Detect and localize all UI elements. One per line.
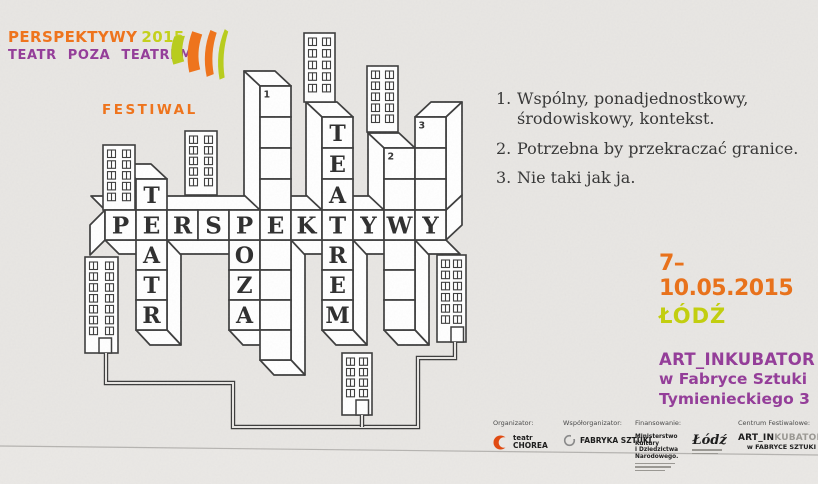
crossword-city-art: TATROZA1TEAREM23PERSPEKTYWY xyxy=(0,0,818,484)
brand-arcs-icon xyxy=(167,21,229,81)
fine-print-bar xyxy=(635,470,665,472)
ministry-line4: Narodowego. xyxy=(635,454,678,461)
footer-organizer: Organizator: teatr CHOREA xyxy=(493,419,548,451)
chorea-logo: teatr CHOREA xyxy=(493,434,548,451)
fabryka-circle-icon xyxy=(563,434,576,447)
clue-list: 1. Wspólny, ponadjednostkowy, środowisko… xyxy=(496,89,818,198)
festival-poster: TATROZA1TEAREM23PERSPEKTYWY PERSPEKTYWY2… xyxy=(0,0,818,484)
clue-3: 3. Nie taki jak ja. xyxy=(496,168,818,188)
clue-1: 1. Wspólny, ponadjednostkowy, środowisko… xyxy=(496,89,818,130)
artink-solid: ART_IN xyxy=(738,433,774,443)
organizer-label: Organizator: xyxy=(493,419,548,427)
chorea-crescent-icon xyxy=(493,434,509,451)
ministry-line2: Kultury xyxy=(635,441,678,448)
art-inkubator-logo: ART_INKUBATOR w FABRYCE SZTUKI xyxy=(738,434,816,451)
title-line: PERSPEKTYWY2015 xyxy=(8,30,193,46)
clue-2-number: 2. xyxy=(496,139,517,159)
lodz-city-logo: Łódź xyxy=(692,434,726,454)
festival-center-label: Centrum Festiwalowe: xyxy=(738,419,816,427)
artink-line2: w FABRYCE SZTUKI xyxy=(738,444,816,451)
venue-name: ART_INKUBATOR xyxy=(659,349,818,370)
clue-1-text: Wspólny, ponadjednostkowy, środowiskowy,… xyxy=(517,89,818,130)
financing-label: Finansowanie: xyxy=(635,419,727,427)
lodz-script: Łódź xyxy=(692,434,726,447)
fine-print-bar xyxy=(635,463,675,465)
event-dates: 7–10.05.2015 xyxy=(659,251,818,301)
fine-print-bar xyxy=(692,453,718,455)
clue-2: 2. Potrzebna by przekraczać granice. xyxy=(496,139,818,159)
clue-2-text: Potrzebna by przekraczać granice. xyxy=(517,139,798,159)
venue-line2: w Fabryce Sztuki xyxy=(659,370,818,390)
footer-financing: Finansowanie: Ministerstwo Kultury i Dzi… xyxy=(635,419,727,471)
clue-3-text: Nie taki jak ja. xyxy=(517,168,635,188)
event-venue: ART_INKUBATOR w Fabryce Sztuki Tymieniec… xyxy=(659,349,818,410)
fine-print-bar xyxy=(692,449,722,451)
fine-print-bar xyxy=(635,466,671,468)
event-city: ŁÓDŹ xyxy=(659,304,818,328)
title-word: PERSPEKTYWY xyxy=(8,28,137,46)
clue-3-number: 3. xyxy=(496,168,517,188)
footer-festival-center: Centrum Festiwalowe: ART_INKUBATOR w FAB… xyxy=(738,419,816,451)
poster-title: PERSPEKTYWY2015 TEATR POZA TEATREM xyxy=(8,30,193,62)
ministry-logo: Ministerstwo Kultury i Dziedzictwa Narod… xyxy=(635,434,678,471)
event-details: 7–10.05.2015 ŁÓDŹ ART_INKUBATOR w Fabryc… xyxy=(659,251,818,410)
poster-subtitle: TEATR POZA TEATREM xyxy=(8,49,193,63)
artink-grey: KUBATOR xyxy=(774,433,818,443)
chorea-line2: CHOREA xyxy=(513,442,548,450)
ministry-line1: Ministerstwo xyxy=(635,434,678,441)
venue-line3: Tymienieckiego 3 xyxy=(659,390,818,410)
clue-1-number: 1. xyxy=(496,89,517,130)
ministry-line3: i Dziedzictwa xyxy=(635,447,678,454)
festival-label: FESTIWAL xyxy=(102,102,198,118)
